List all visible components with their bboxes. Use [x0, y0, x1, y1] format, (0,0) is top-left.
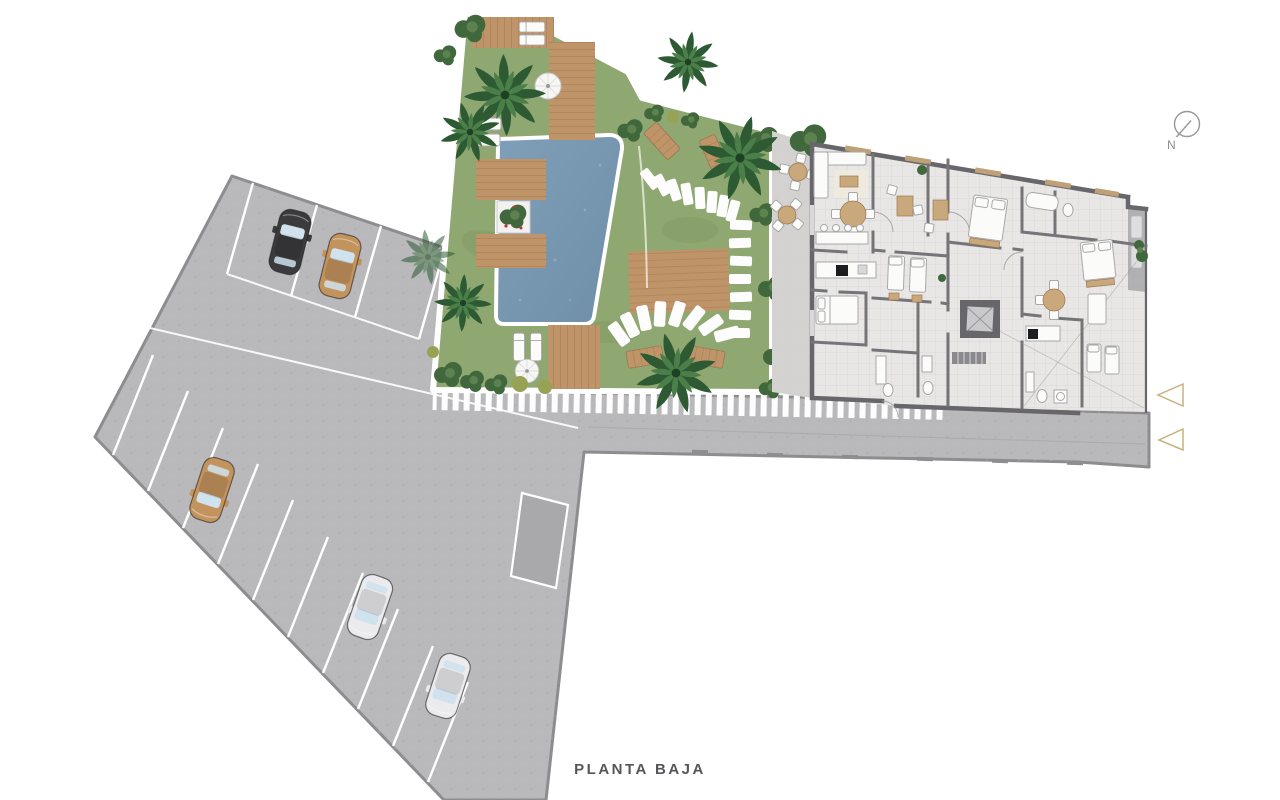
apartment-building: [810, 144, 1148, 417]
page-title: PLANTA BAJA: [0, 761, 1280, 778]
north-label: N: [1167, 138, 1176, 152]
entrance-arrows: [1158, 384, 1183, 450]
planter: [497, 201, 530, 233]
entrance-arrow: [1159, 429, 1183, 450]
bedroom-bed: [816, 296, 858, 324]
cooktop: [836, 265, 848, 276]
sofa: [1088, 294, 1106, 324]
stairs: [952, 352, 986, 364]
balcony-lounger: [1131, 216, 1142, 238]
palm-tree: [652, 26, 723, 97]
cooktop: [1028, 329, 1038, 339]
sink: [858, 265, 867, 274]
north-indicator: [1175, 112, 1200, 138]
floor-plan-canvas: PLANTA BAJA N: [0, 0, 1280, 800]
entrance-arrow: [1158, 384, 1183, 406]
elevator: [960, 300, 1000, 338]
coffee-table: [840, 176, 858, 187]
site-plan-drawing: [0, 0, 1280, 800]
